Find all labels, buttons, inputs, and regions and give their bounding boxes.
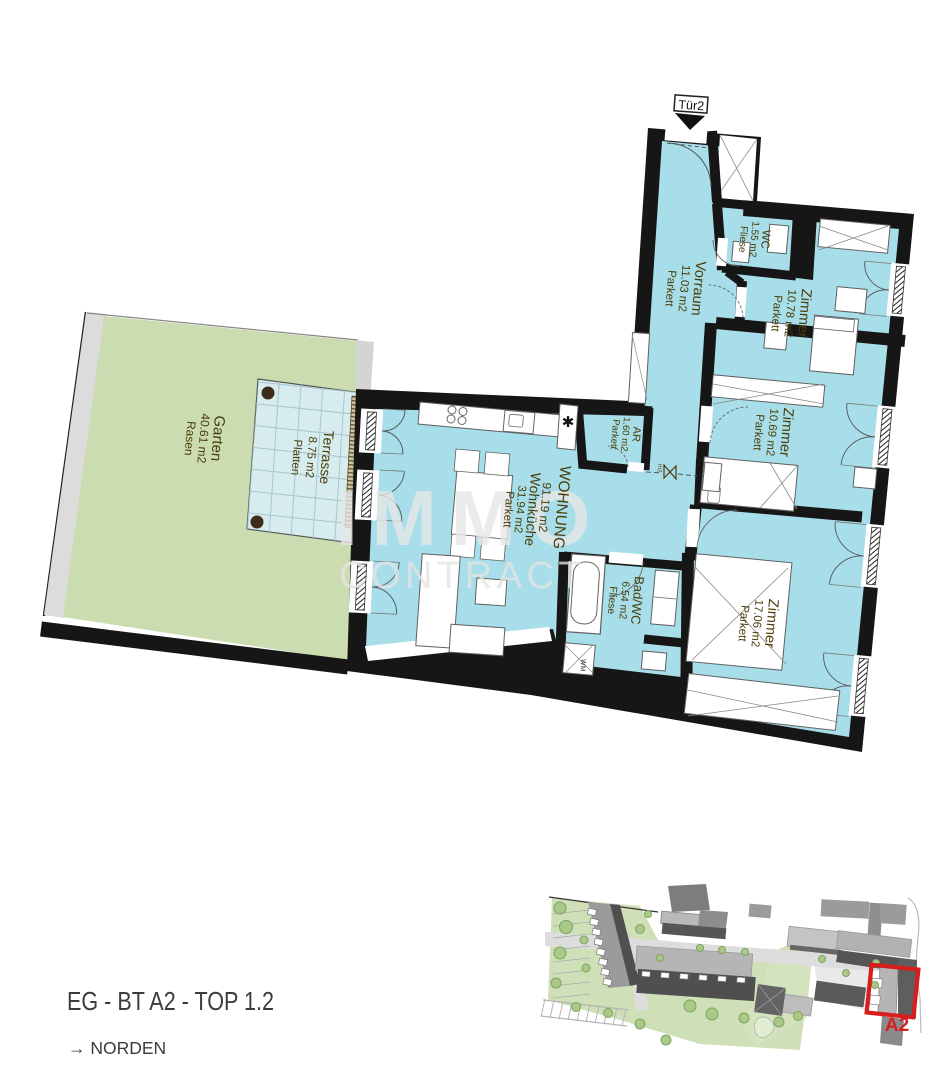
svg-text:✱: ✱: [562, 414, 575, 431]
svg-text:→ NORDEN: → NORDEN: [68, 1038, 166, 1058]
svg-text:A2: A2: [885, 1015, 909, 1036]
svg-text:Fliese: Fliese: [605, 586, 619, 615]
svg-text:EG - BT A2 - TOP 1.2: EG - BT A2 - TOP 1.2: [67, 986, 274, 1016]
svg-text:m2: m2: [656, 464, 663, 473]
svg-text:WM: WM: [578, 659, 586, 672]
svg-text:Fliese: Fliese: [736, 225, 749, 253]
svg-text:Tür2: Tür2: [678, 98, 705, 114]
svg-text:CONTRACT: CONTRACT: [339, 555, 586, 597]
